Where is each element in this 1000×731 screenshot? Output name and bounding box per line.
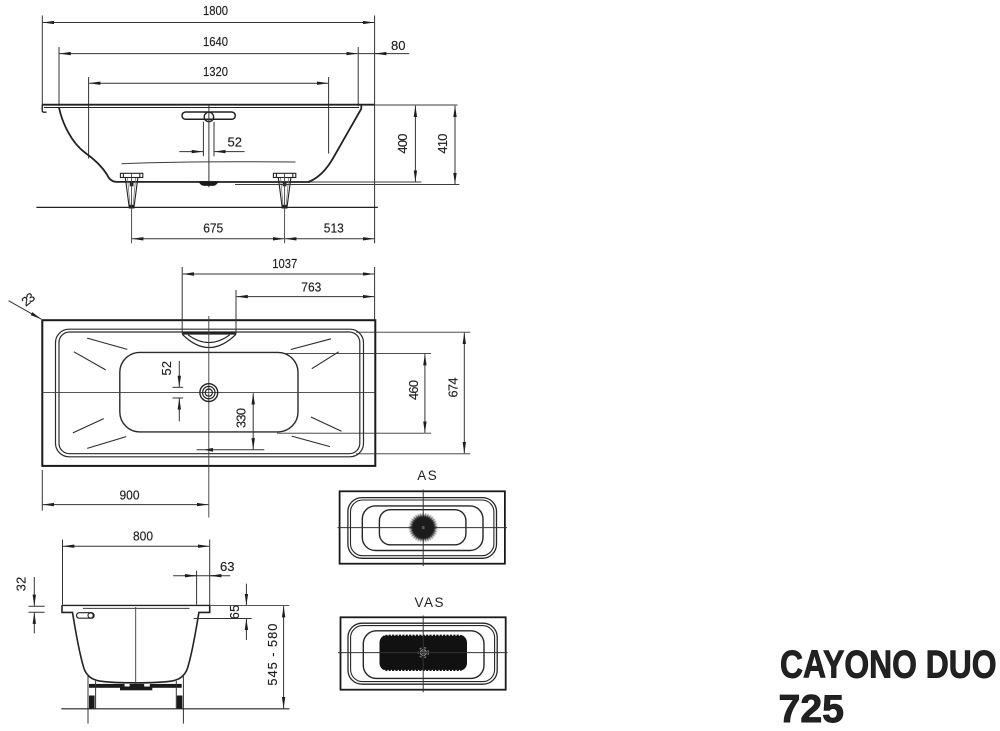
svg-text:410: 410 bbox=[435, 134, 450, 154]
svg-text:23: 23 bbox=[18, 289, 37, 309]
svg-text:63: 63 bbox=[220, 559, 235, 574]
svg-text:65: 65 bbox=[227, 605, 242, 620]
svg-text:674: 674 bbox=[446, 378, 461, 398]
svg-text:1800: 1800 bbox=[203, 3, 228, 18]
svg-text:330: 330 bbox=[234, 408, 249, 428]
svg-text:400: 400 bbox=[395, 134, 410, 154]
svg-text:1037: 1037 bbox=[272, 256, 297, 271]
svg-text:725: 725 bbox=[779, 688, 845, 731]
svg-text:513: 513 bbox=[324, 220, 344, 235]
svg-text:460: 460 bbox=[406, 380, 421, 400]
svg-text:80: 80 bbox=[391, 38, 406, 53]
svg-text:52: 52 bbox=[228, 134, 243, 149]
svg-text:1320: 1320 bbox=[203, 64, 228, 79]
svg-text:900: 900 bbox=[120, 488, 140, 503]
svg-text:763: 763 bbox=[301, 279, 321, 294]
svg-text:800: 800 bbox=[133, 528, 153, 543]
svg-text:CAYONO DUO: CAYONO DUO bbox=[780, 644, 997, 687]
svg-text:545 - 580: 545 - 580 bbox=[265, 624, 280, 686]
svg-text:1640: 1640 bbox=[203, 34, 228, 49]
svg-text:52: 52 bbox=[159, 361, 174, 376]
svg-text:VAS: VAS bbox=[415, 595, 446, 610]
svg-text:32: 32 bbox=[14, 577, 29, 592]
svg-text:AS: AS bbox=[417, 468, 438, 483]
svg-text:675: 675 bbox=[203, 220, 223, 235]
